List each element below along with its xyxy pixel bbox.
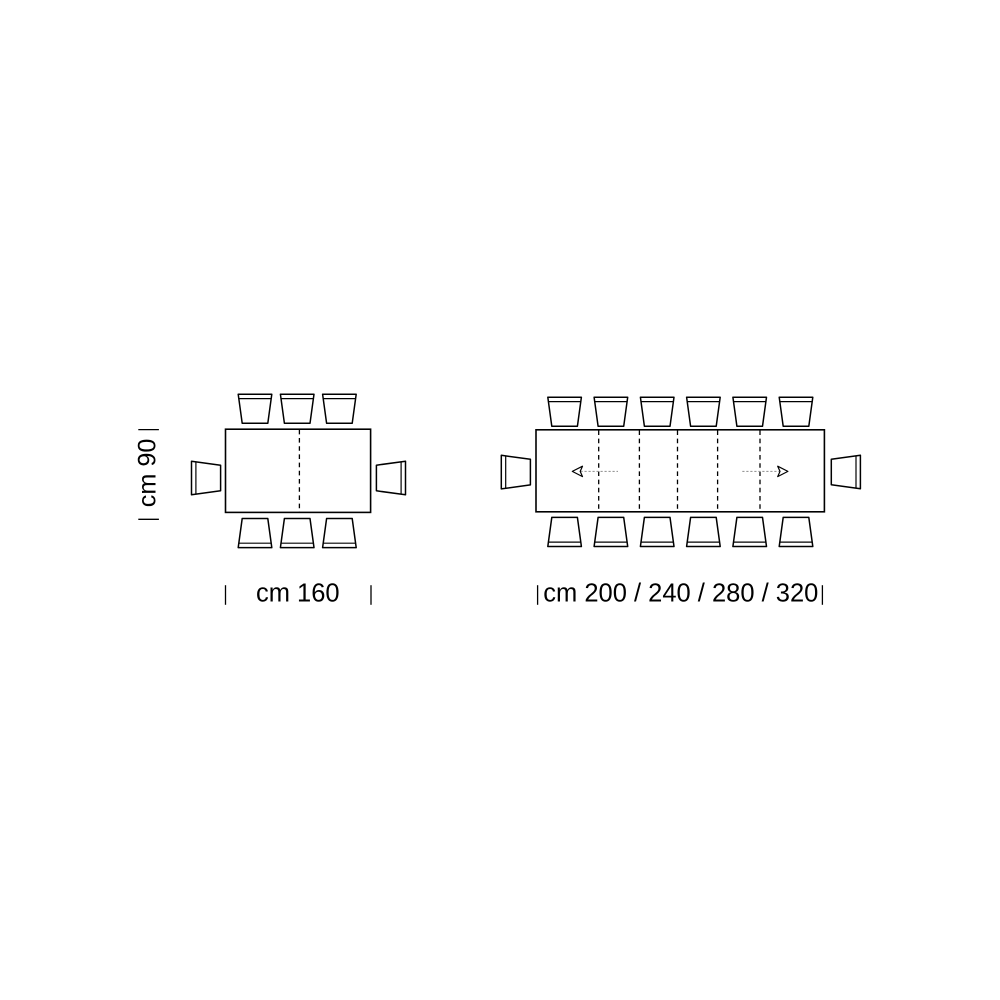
svg-text:cm 160: cm 160	[256, 580, 340, 608]
svg-text:cm 200 / 240 / 280 / 320: cm 200 / 240 / 280 / 320	[543, 580, 818, 608]
svg-text:cm 90: cm 90	[133, 439, 161, 508]
